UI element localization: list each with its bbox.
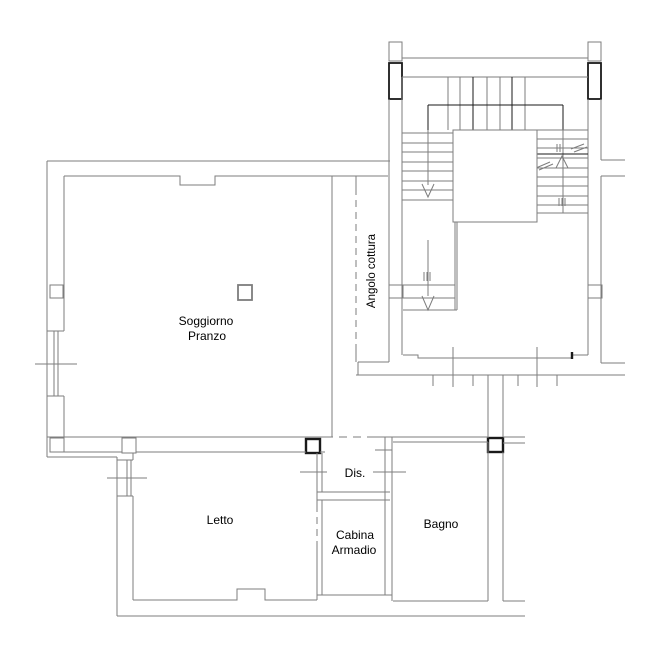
letto-window [107,460,147,496]
column-corridor [488,438,503,452]
bagno-corridor-walls [393,375,525,601]
room-label-letto: Letto [207,513,234,527]
letto-walls [117,453,525,616]
dis-cabina-walls [300,437,406,601]
soggiorno-walls [47,161,390,457]
room-label-pranzo: Pranzo [188,329,226,343]
soggiorno-window [35,331,77,396]
pillars [50,42,602,453]
floor-plan: Soggiorno Pranzo Angolo cottura Letto Di… [0,0,667,645]
room-label-dis: Dis. [345,466,366,480]
stair-landing [453,130,537,222]
room-labels: Soggiorno Pranzo Angolo cottura Letto Di… [179,233,459,557]
room-label-cabina: Cabina [336,528,374,542]
column-soggiorno [238,285,252,300]
room-label-bagno: Bagno [424,517,459,531]
middle-wall-band [47,437,525,452]
column-dis [306,439,320,453]
room-label-angolo-cottura: Angolo cottura [366,233,378,308]
room-label-armadio: Armadio [332,543,377,557]
stairs [402,77,588,310]
floor-plan-svg: Soggiorno Pranzo Angolo cottura Letto Di… [0,0,667,645]
room-label-soggiorno: Soggiorno [179,314,234,328]
